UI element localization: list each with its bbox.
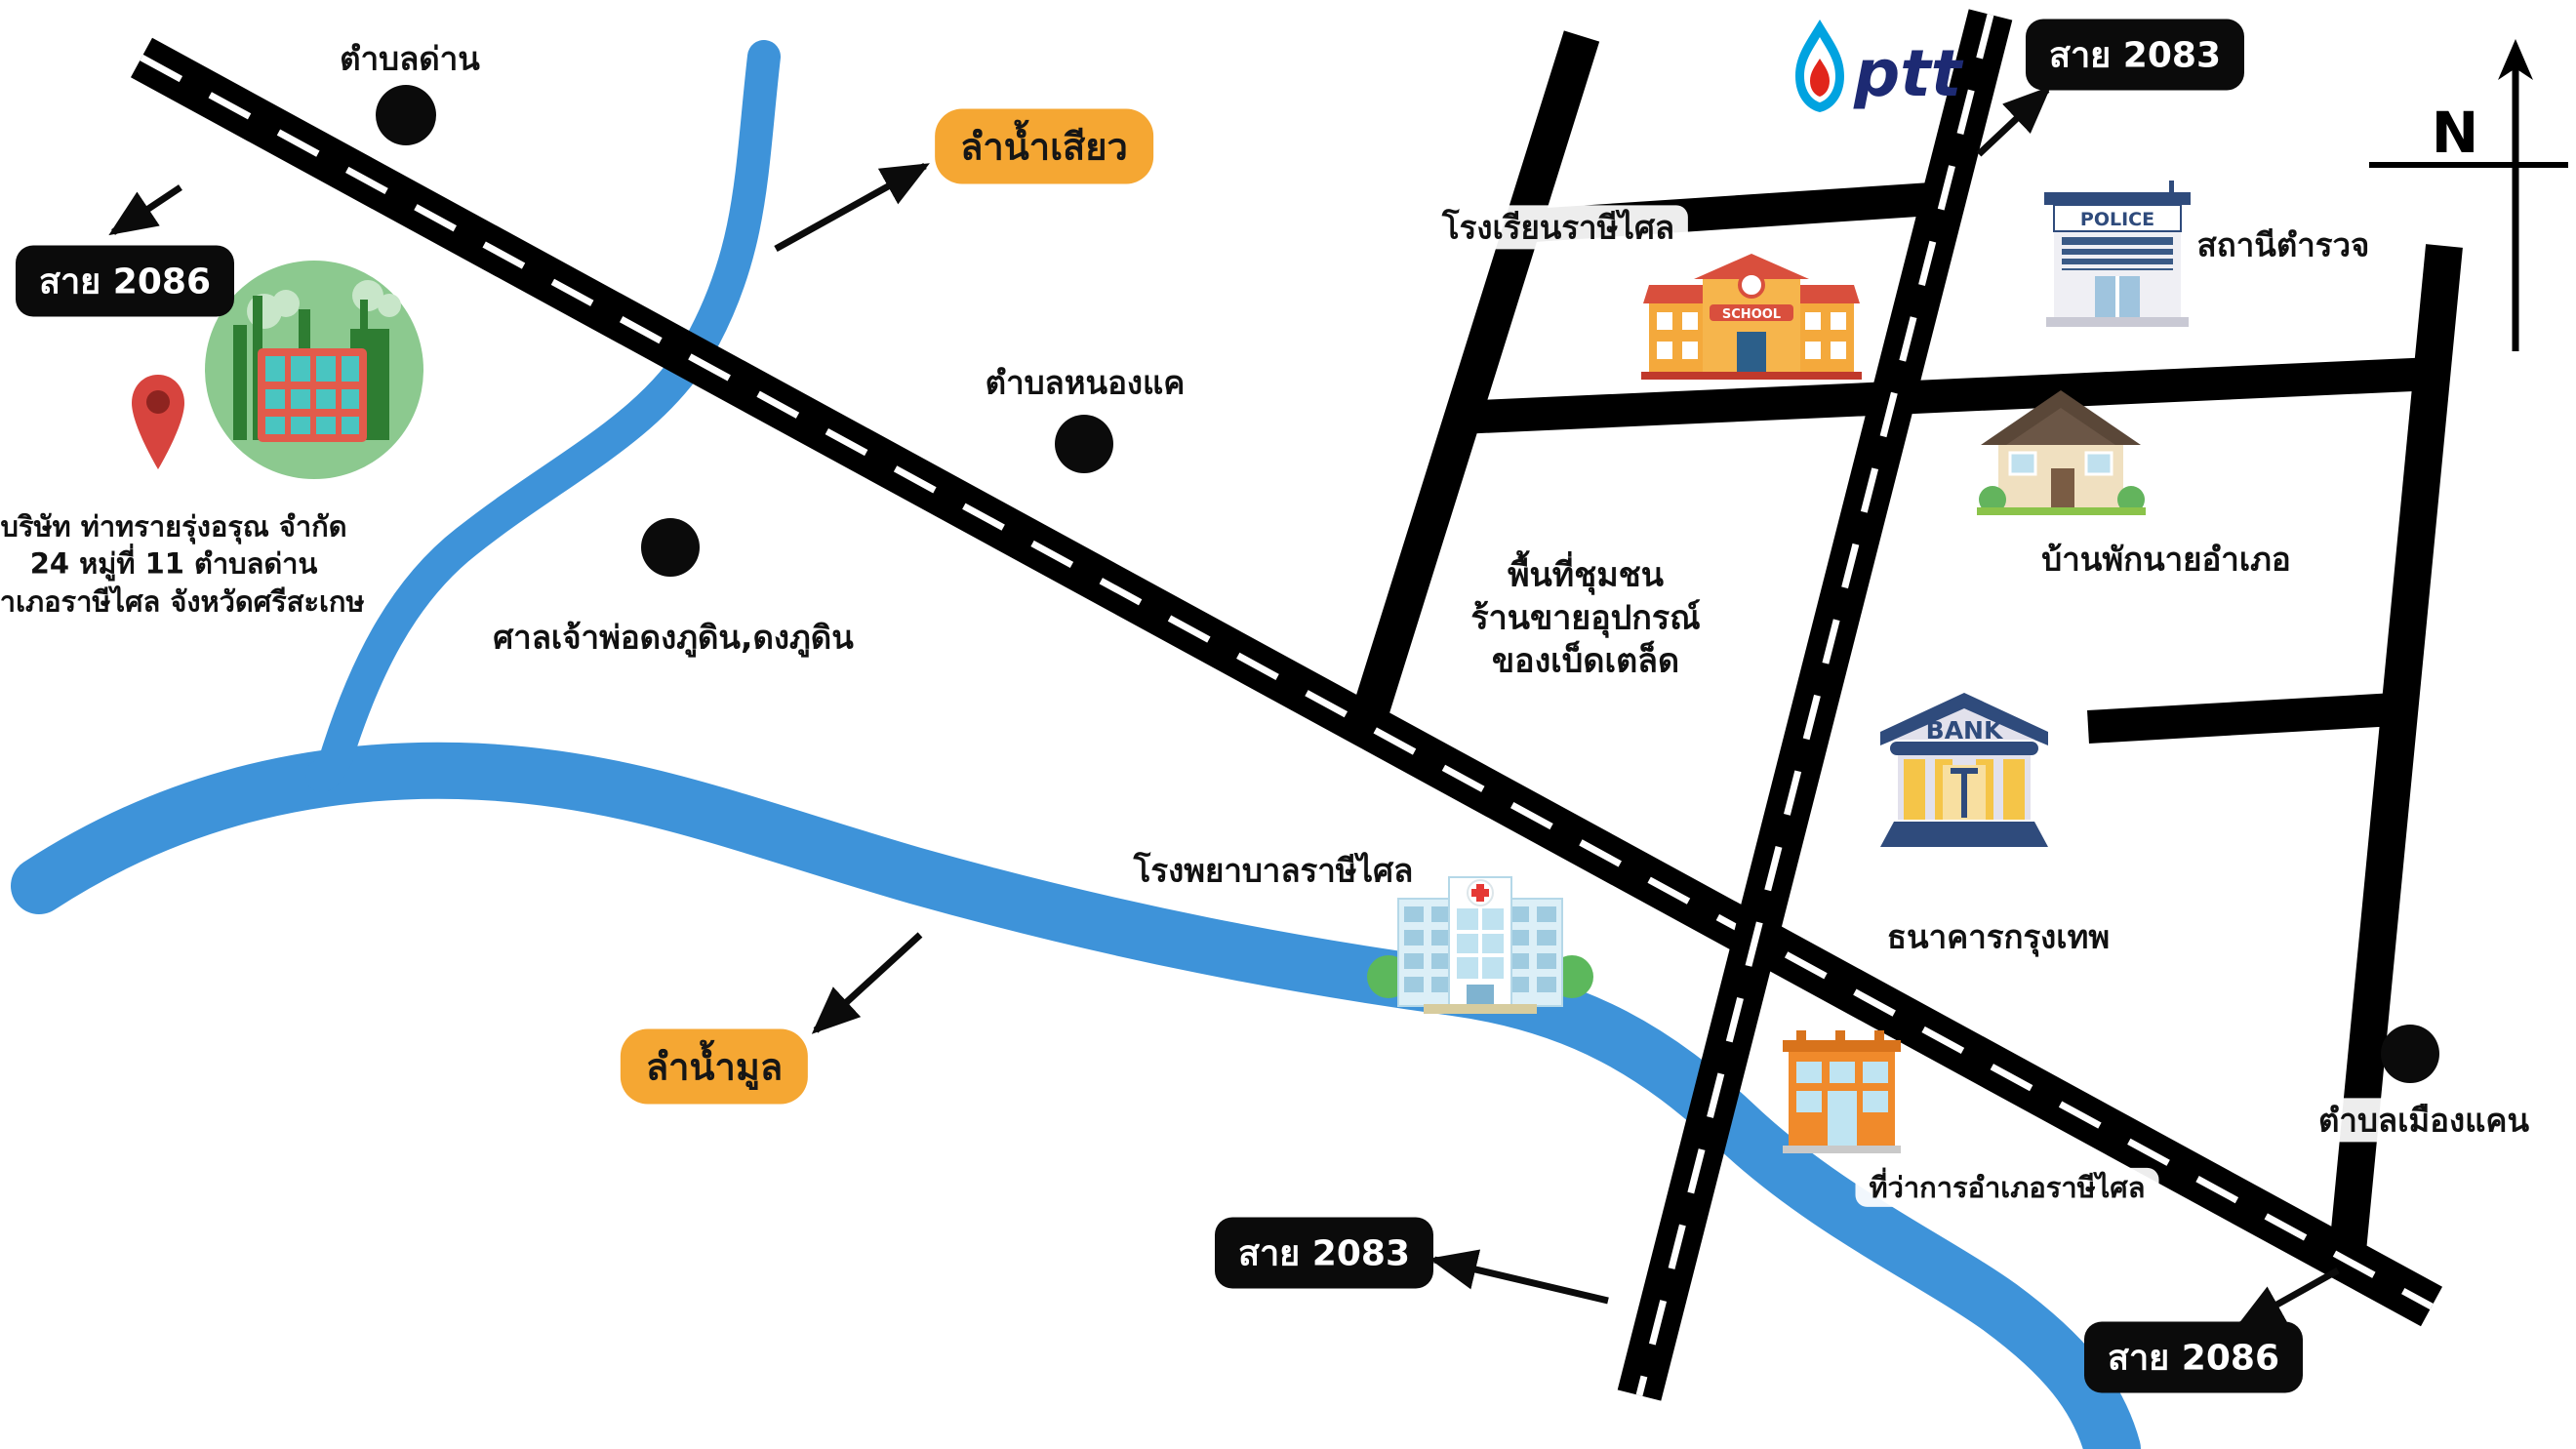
route-2086-bottomright-badge: สาย 2086: [2084, 1322, 2303, 1393]
bank-icon: BANK: [1880, 693, 2048, 847]
hospital-icon: [1367, 877, 1593, 1014]
shrine-label: ศาลเจ้าพ่อดงภูดิน,ดงภูดิน: [479, 615, 867, 659]
district-office-icon: [1783, 1030, 1901, 1153]
arrow-to-2086-bottomright: [2240, 1270, 2338, 1325]
route-2083-topright-badge: สาย 2083: [2026, 20, 2244, 91]
compass-rose: N: [2369, 39, 2568, 351]
tambon-dan-dot: [376, 85, 436, 145]
police-station-icon: POLICE: [2044, 181, 2191, 327]
compass-north-label: N: [2432, 100, 2479, 166]
company-name-line: บริษัท ท่าทรายรุ่งอรุณ จำกัด: [0, 508, 365, 545]
river-siao-badge: ลำน้ำเสียว: [935, 109, 1153, 184]
tambon-mueang-khaen-dot: [2381, 1025, 2439, 1083]
school-sign-text: SCHOOL: [1722, 307, 1781, 322]
road-grid-middle: [1459, 374, 2435, 418]
school-label: โรงเรียนราษีไศล: [1429, 205, 1688, 249]
arrow-to-2083-bottom: [1434, 1260, 1608, 1301]
arrow-to-siao-badge: [776, 166, 925, 249]
company-address-label: บริษัท ท่าทรายรุ่งอรุณ จำกัด 24 หมู่ที่ …: [0, 504, 381, 624]
district-office-label: ที่ว่าการอำเภอราษีไศล: [1856, 1168, 2159, 1207]
ptt-logo: ptt: [1795, 20, 1964, 112]
bank-label: ธนาคารกรุงเทพ: [1873, 914, 2123, 958]
tambon-dan-label: ตำบลด่าน: [326, 36, 494, 80]
road-grid-south-connector: [2088, 709, 2395, 727]
location-pin-icon: [132, 375, 184, 469]
map-canvas: N ptt: [0, 0, 2576, 1449]
ptt-wordmark: ptt: [1853, 36, 1964, 111]
tambon-nong-khae-dot: [1055, 415, 1113, 473]
company-address-line-2: อำเภอราษีไศล จังหวัดศรีสะเกษ: [0, 583, 365, 620]
community-line-2: ร้านขายอุปกรณ์: [1470, 597, 1700, 640]
pointer-arrows: [113, 90, 2338, 1325]
bank-sign-text: BANK: [1926, 716, 2004, 745]
community-line-1: พื้นที่ชุมชน: [1470, 554, 1700, 597]
company-address-line-1: 24 หมู่ที่ 11 ตำบลด่าน: [0, 545, 365, 583]
route-2086-topleft-badge: สาย 2086: [16, 246, 234, 317]
police-sign-text: POLICE: [2080, 209, 2154, 230]
school-icon: SCHOOL: [1641, 254, 1862, 380]
river-mun-badge: ลำน้ำมูล: [621, 1029, 808, 1105]
route-2083-bottom-badge: สาย 2083: [1215, 1218, 1433, 1289]
official-house-label: บ้านพักนายอำเภอ: [2028, 537, 2304, 581]
community-line-3: ของเบ็ดเตล็ด: [1470, 640, 1700, 683]
arrow-to-2086-topleft: [113, 187, 181, 232]
tambon-mueang-khaen-label: ตำบลเมืองแคน: [2305, 1098, 2543, 1142]
tambon-nong-khae-label: ตำบลหนองแค: [972, 360, 1199, 404]
community-area-label: พื้นที่ชุมชน ร้านขายอุปกรณ์ ของเบ็ดเตล็ด: [1455, 550, 1715, 688]
arrow-to-mun-badge: [816, 935, 920, 1030]
company-logo: [205, 261, 423, 479]
hospital-label: โรงพยาบาลราษีไศล: [1120, 848, 1428, 892]
shrine-dot: [641, 518, 700, 577]
police-label: สถานีตำรวจ: [2184, 222, 2384, 266]
